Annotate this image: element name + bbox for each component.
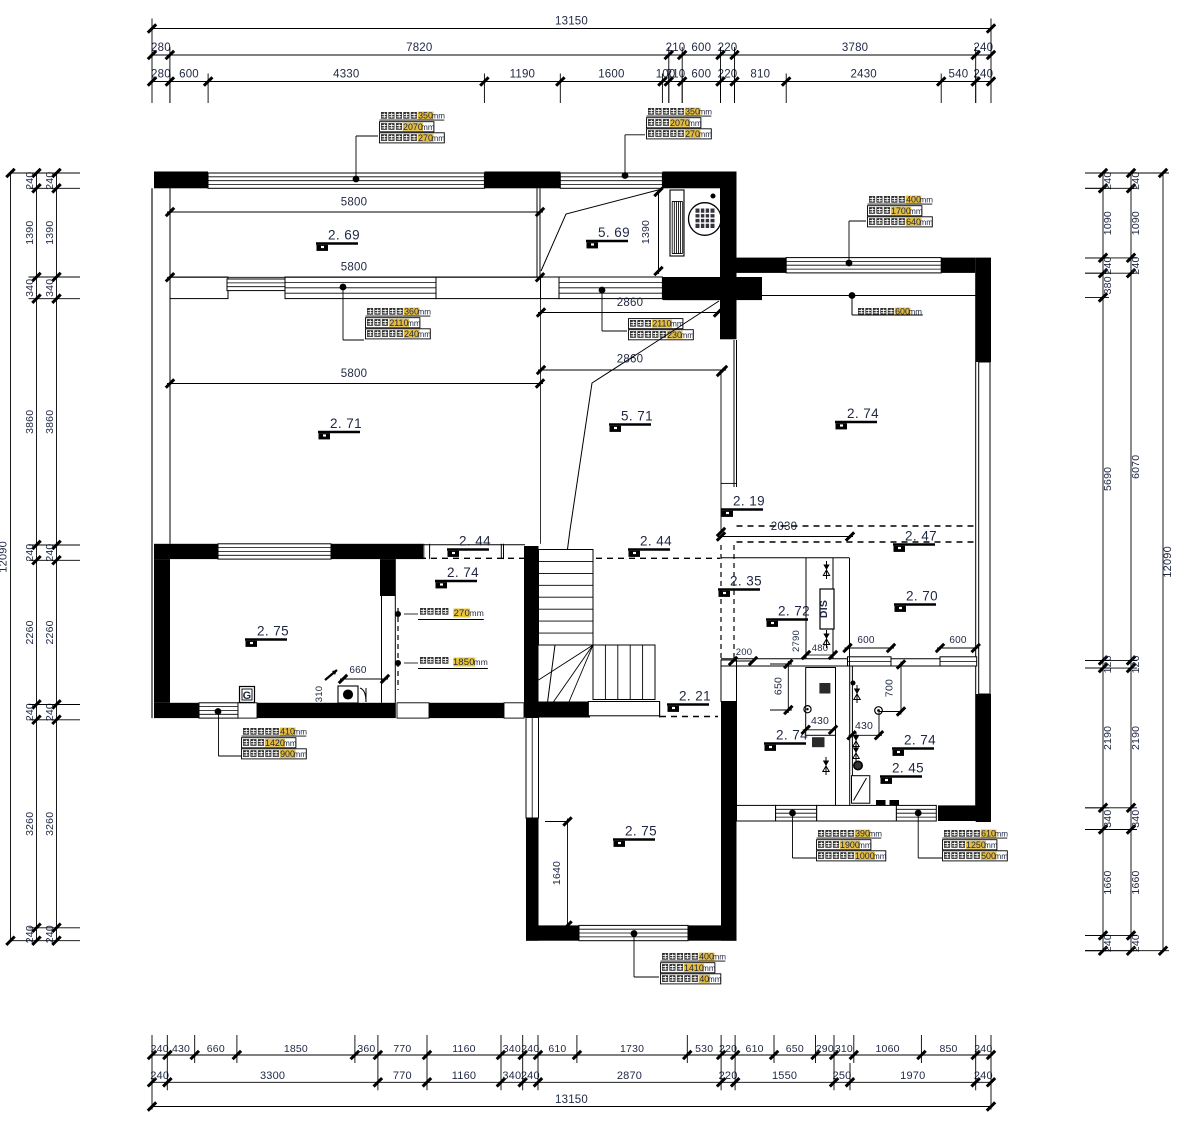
svg-text:1700: 1700	[891, 206, 911, 216]
svg-text:530: 530	[695, 1043, 713, 1055]
svg-text:13150: 13150	[555, 1094, 588, 1106]
svg-text:120: 120	[1102, 655, 1114, 673]
svg-text:270: 270	[454, 608, 470, 619]
svg-text:5. 69: 5. 69	[598, 225, 630, 240]
svg-text:2. 74: 2. 74	[904, 733, 936, 748]
svg-text:1640: 1640	[551, 861, 563, 885]
svg-text:2190: 2190	[1130, 726, 1142, 750]
svg-text:12090: 12090	[0, 541, 10, 573]
svg-text:mm: mm	[432, 112, 446, 121]
svg-text:2070: 2070	[403, 122, 423, 132]
svg-text:mm: mm	[699, 130, 713, 139]
svg-text:340: 340	[1130, 810, 1142, 828]
svg-text:mm: mm	[670, 320, 684, 329]
svg-text:mm: mm	[407, 319, 421, 328]
svg-text:5690: 5690	[1102, 467, 1114, 491]
svg-text:1600: 1600	[598, 69, 624, 81]
svg-text:600: 600	[857, 635, 875, 646]
svg-text:6070: 6070	[1130, 455, 1142, 479]
svg-text:770: 770	[393, 1043, 411, 1055]
svg-text:600: 600	[179, 69, 199, 81]
svg-text:700: 700	[884, 679, 896, 697]
svg-text:310: 310	[314, 686, 325, 702]
svg-text:mm: mm	[909, 207, 923, 216]
svg-text:200: 200	[736, 647, 752, 658]
svg-text:4330: 4330	[333, 69, 359, 81]
svg-text:2. 35: 2. 35	[730, 574, 762, 589]
svg-text:mm: mm	[681, 331, 695, 340]
svg-text:mm: mm	[920, 218, 934, 227]
svg-text:1160: 1160	[452, 1043, 475, 1055]
svg-text:240: 240	[151, 1043, 169, 1055]
svg-text:2. 70: 2. 70	[906, 589, 938, 604]
svg-text:1190: 1190	[510, 69, 536, 81]
svg-text:mm: mm	[294, 750, 308, 759]
svg-text:2260: 2260	[44, 620, 56, 644]
svg-text:5800: 5800	[341, 197, 367, 209]
svg-text:240: 240	[1102, 934, 1114, 952]
svg-text:1390: 1390	[44, 221, 56, 245]
svg-text:mm: mm	[858, 841, 872, 850]
svg-text:5800: 5800	[341, 262, 367, 274]
svg-text:1550: 1550	[772, 1070, 797, 1082]
svg-text:660: 660	[349, 665, 367, 676]
svg-text:1250: 1250	[966, 840, 986, 850]
svg-text:650: 650	[773, 677, 785, 695]
svg-text:3780: 3780	[842, 42, 868, 54]
svg-text:1900: 1900	[840, 840, 860, 850]
svg-text:2. 72: 2. 72	[778, 604, 810, 619]
svg-text:mm: mm	[418, 308, 432, 317]
svg-text:240: 240	[974, 1070, 993, 1082]
svg-text:290: 290	[816, 1043, 834, 1055]
svg-text:810: 810	[750, 69, 770, 81]
svg-text:2. 74: 2. 74	[847, 406, 879, 421]
svg-text:mm: mm	[984, 841, 998, 850]
svg-text:240: 240	[44, 703, 56, 721]
svg-text:240: 240	[44, 544, 56, 562]
svg-text:340: 340	[24, 279, 36, 297]
svg-text:380: 380	[1102, 276, 1114, 294]
svg-text:2. 75: 2. 75	[257, 624, 289, 639]
svg-text:mm: mm	[421, 123, 435, 132]
svg-text:3860: 3860	[44, 410, 56, 434]
svg-text:240: 240	[24, 544, 36, 562]
svg-text:280: 280	[151, 69, 171, 81]
svg-text:mm: mm	[995, 852, 1009, 861]
svg-text:240: 240	[44, 172, 56, 190]
svg-text:280: 280	[151, 42, 171, 54]
svg-text:mm: mm	[713, 953, 727, 962]
svg-text:2070: 2070	[670, 118, 690, 128]
svg-text:120: 120	[1130, 655, 1142, 673]
svg-text:240: 240	[973, 69, 993, 81]
svg-text:240: 240	[521, 1070, 540, 1082]
svg-text:340: 340	[502, 1070, 521, 1082]
svg-text:600: 600	[691, 42, 711, 54]
svg-text:2. 19: 2. 19	[733, 494, 765, 509]
svg-text:2. 44: 2. 44	[459, 534, 491, 549]
svg-text:650: 650	[786, 1043, 804, 1055]
svg-text:240: 240	[150, 1070, 169, 1082]
svg-text:1390: 1390	[24, 221, 36, 245]
svg-text:3860: 3860	[24, 410, 36, 434]
svg-text:2860: 2860	[617, 354, 643, 366]
svg-text:mm: mm	[699, 108, 713, 117]
svg-text:2. 47: 2. 47	[905, 529, 937, 544]
svg-text:1730: 1730	[620, 1043, 644, 1055]
svg-text:mm: mm	[474, 657, 489, 667]
svg-text:1090: 1090	[1102, 211, 1114, 235]
svg-text:mm: mm	[702, 964, 716, 973]
svg-text:5800: 5800	[341, 368, 367, 380]
svg-text:540: 540	[949, 69, 969, 81]
svg-text:1390: 1390	[640, 220, 652, 244]
svg-text:240: 240	[521, 1043, 539, 1055]
svg-text:G: G	[243, 690, 252, 702]
svg-text:mm: mm	[708, 975, 722, 984]
svg-text:mm: mm	[688, 119, 702, 128]
svg-text:2. 21: 2. 21	[679, 689, 711, 704]
svg-text:13150: 13150	[555, 16, 588, 28]
svg-text:240: 240	[1130, 172, 1142, 190]
svg-text:770: 770	[393, 1070, 412, 1082]
svg-text:610: 610	[548, 1043, 566, 1055]
svg-text:1060: 1060	[876, 1043, 900, 1055]
svg-text:2430: 2430	[851, 69, 877, 81]
svg-text:310: 310	[835, 1043, 853, 1055]
svg-text:240: 240	[24, 172, 36, 190]
svg-text:mm: mm	[873, 852, 887, 861]
svg-text:7820: 7820	[406, 42, 432, 54]
svg-text:2. 74: 2. 74	[447, 565, 479, 580]
svg-text:2110: 2110	[652, 319, 671, 329]
svg-text:2. 69: 2. 69	[328, 228, 360, 243]
svg-text:240: 240	[24, 703, 36, 721]
svg-text:1000: 1000	[855, 851, 875, 861]
svg-text:2790: 2790	[791, 630, 802, 652]
svg-text:2870: 2870	[617, 1070, 642, 1082]
svg-text:12090: 12090	[1162, 546, 1174, 578]
svg-text:3260: 3260	[24, 812, 36, 836]
svg-text:360: 360	[357, 1043, 375, 1055]
svg-text:240: 240	[1130, 934, 1142, 952]
svg-text:2. 45: 2. 45	[892, 761, 924, 776]
svg-text:240: 240	[1102, 256, 1114, 274]
svg-text:240: 240	[973, 42, 993, 54]
svg-text:430: 430	[172, 1043, 190, 1055]
svg-text:340: 340	[503, 1043, 521, 1055]
svg-text:1160: 1160	[452, 1070, 476, 1082]
svg-text:2. 71: 2. 71	[330, 416, 362, 431]
svg-text:2260: 2260	[24, 620, 36, 644]
svg-text:mm: mm	[995, 830, 1009, 839]
svg-text:mm: mm	[470, 608, 485, 618]
svg-text:660: 660	[207, 1043, 225, 1055]
svg-text:mm: mm	[418, 330, 432, 339]
svg-text:600: 600	[949, 635, 967, 646]
svg-text:1420: 1420	[265, 738, 285, 748]
svg-text:2030: 2030	[771, 521, 797, 533]
svg-text:340: 340	[1102, 810, 1114, 828]
svg-text:1090: 1090	[1130, 211, 1142, 235]
svg-text:2860: 2860	[617, 297, 643, 309]
svg-text:430: 430	[811, 715, 829, 727]
svg-text:1850: 1850	[284, 1043, 308, 1055]
svg-text:340: 340	[44, 279, 56, 297]
svg-text:mm: mm	[294, 728, 308, 737]
svg-text:3300: 3300	[260, 1070, 285, 1082]
svg-text:850: 850	[939, 1043, 957, 1055]
svg-text:1410: 1410	[684, 963, 704, 973]
svg-text:430: 430	[855, 720, 873, 732]
svg-text:610: 610	[746, 1043, 764, 1055]
svg-text:240: 240	[1130, 256, 1142, 274]
svg-text:mm: mm	[432, 134, 446, 143]
svg-text:DIS: DIS	[818, 600, 830, 618]
svg-text:1970: 1970	[900, 1070, 925, 1082]
svg-text:250: 250	[833, 1070, 852, 1082]
svg-text:2190: 2190	[1102, 726, 1114, 750]
svg-text:1660: 1660	[1102, 870, 1114, 894]
svg-text:600: 600	[691, 69, 711, 81]
svg-text:240: 240	[974, 1043, 992, 1055]
svg-text:mm: mm	[869, 830, 883, 839]
svg-text:3260: 3260	[44, 812, 56, 836]
svg-text:220: 220	[719, 1043, 737, 1055]
svg-text:1850: 1850	[453, 657, 475, 668]
svg-text:2. 44: 2. 44	[640, 534, 672, 549]
svg-text:2. 75: 2. 75	[625, 824, 657, 839]
svg-text:1660: 1660	[1130, 870, 1142, 894]
svg-text:mm: mm	[920, 196, 934, 205]
svg-text:5. 71: 5. 71	[621, 409, 653, 424]
svg-text:240: 240	[1102, 172, 1114, 190]
svg-text:mm: mm	[283, 739, 297, 748]
svg-text:2110: 2110	[389, 318, 408, 328]
